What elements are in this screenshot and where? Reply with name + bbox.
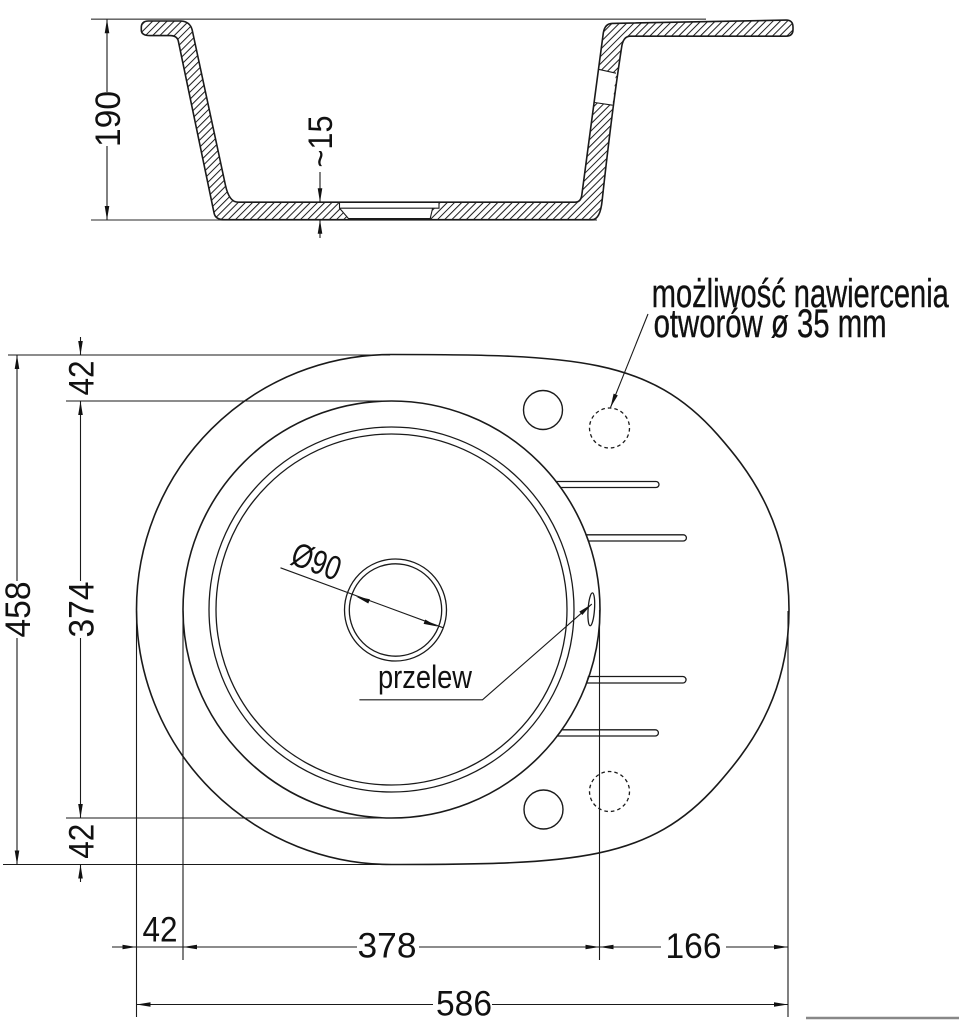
svg-text:166: 166 — [666, 927, 722, 966]
svg-text:458: 458 — [0, 582, 38, 638]
svg-text:przelew: przelew — [378, 659, 473, 695]
svg-text:190: 190 — [89, 91, 128, 147]
svg-text:otworów ø 35 mm: otworów ø 35 mm — [654, 302, 887, 346]
svg-text:42: 42 — [63, 824, 102, 859]
svg-text:374: 374 — [63, 582, 102, 638]
svg-text:586: 586 — [436, 985, 492, 1023]
svg-text:~15: ~15 — [302, 116, 340, 168]
svg-text:378: 378 — [358, 927, 417, 966]
svg-text:42: 42 — [143, 911, 178, 950]
svg-text:42: 42 — [63, 361, 102, 396]
